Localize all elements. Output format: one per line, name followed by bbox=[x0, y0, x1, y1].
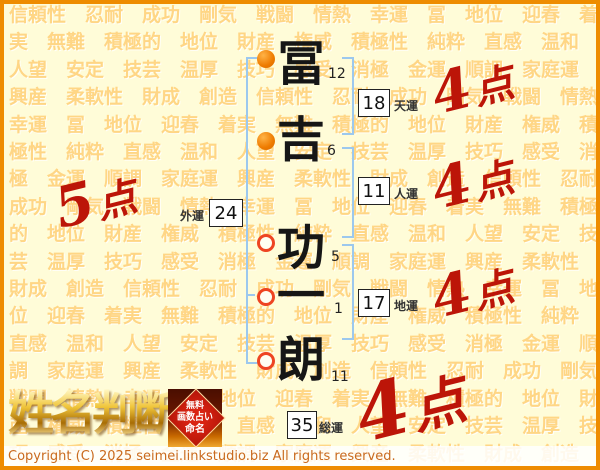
name-char-5: 朗 bbox=[277, 336, 325, 384]
earth-luck-bracket-line bbox=[352, 244, 354, 340]
person-luck-label: 人運 bbox=[394, 188, 418, 200]
earth-luck-bracket-bottom-arm bbox=[342, 338, 354, 340]
stroke-count-3: 5 bbox=[331, 250, 340, 264]
heaven-luck-label: 天運 bbox=[394, 100, 418, 112]
outer-luck-label: 外運 bbox=[180, 210, 204, 222]
badge-line-3: 命名 bbox=[185, 424, 205, 436]
copyright-text: Copyright (C) 2025 seimei.linkstudio.biz… bbox=[0, 449, 396, 464]
person-luck-bracket-top-arm bbox=[342, 147, 354, 149]
outer-luck-value-box: 24 bbox=[209, 199, 243, 227]
total-luck-value-box: 35 bbox=[287, 411, 317, 439]
stroke-count-4: 1 bbox=[334, 302, 343, 316]
copyright-bar: Copyright (C) 2025 seimei.linkstudio.biz… bbox=[0, 446, 600, 466]
given-name-marker-icon bbox=[257, 234, 275, 252]
stroke-count-2: 6 bbox=[327, 144, 336, 158]
person-luck-bracket-bottom-arm bbox=[342, 236, 354, 238]
given-name-marker-icon bbox=[257, 288, 275, 306]
stroke-count-1: 12 bbox=[328, 67, 346, 81]
heaven-luck-bracket-bottom-arm bbox=[342, 133, 354, 135]
name-char-2: 吉 bbox=[277, 116, 325, 164]
outer-luck-bracket-line bbox=[246, 57, 248, 364]
seimei-result-page: 信頼性 忍耐 成功 剛気 戦闘 情熱 幸運 冨 地位 迎春 着実 無難 積極的 … bbox=[0, 0, 600, 470]
name-char-4: 一 bbox=[277, 272, 325, 320]
badge-line-1: 無料 bbox=[186, 401, 204, 412]
site-logo[interactable]: 姓名判断 bbox=[8, 388, 176, 438]
earth-luck-value-box: 17 bbox=[358, 289, 390, 317]
earth-luck-label: 地運 bbox=[394, 300, 418, 312]
given-name-marker-icon bbox=[257, 352, 275, 370]
free-naming-badge[interactable]: 無料 画数占い 命名 bbox=[168, 389, 222, 447]
total-luck-label: 総運 bbox=[319, 422, 343, 434]
person-luck-value-box: 11 bbox=[358, 177, 390, 205]
name-char-3: 功 bbox=[277, 224, 325, 272]
heaven-luck-value-box: 18 bbox=[358, 89, 390, 117]
heaven-luck-bracket-top-arm bbox=[342, 57, 354, 59]
person-luck-bracket-line bbox=[352, 147, 354, 238]
earth-luck-bracket-top-arm bbox=[342, 244, 354, 246]
heaven-luck-bracket-line bbox=[352, 57, 354, 135]
name-char-1: 冨 bbox=[277, 40, 325, 88]
surname-marker-icon bbox=[257, 50, 275, 68]
outer-luck-bracket-tick bbox=[246, 294, 255, 296]
surname-marker-icon bbox=[257, 132, 275, 150]
badge-line-2: 画数占い bbox=[177, 412, 213, 424]
